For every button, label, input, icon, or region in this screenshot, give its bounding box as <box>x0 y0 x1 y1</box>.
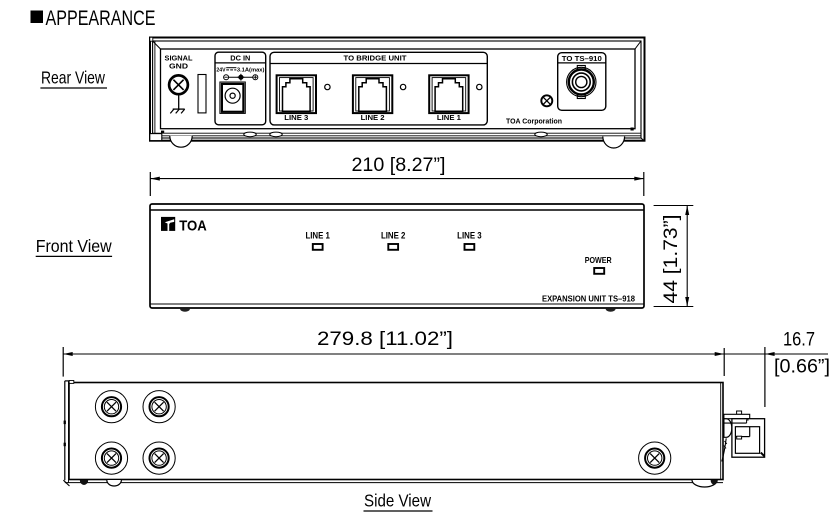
svg-text:TO TS–910: TO TS–910 <box>562 54 602 63</box>
svg-text:APPEARANCE: APPEARANCE <box>46 6 156 30</box>
svg-text:210 [8.27”]: 210 [8.27”] <box>352 154 446 176</box>
svg-text:279.8 [11.02”]: 279.8 [11.02”] <box>317 328 453 350</box>
svg-text:Front View: Front View <box>36 236 112 256</box>
svg-text:Rear View: Rear View <box>41 68 105 88</box>
svg-text:LINE 1: LINE 1 <box>305 231 330 242</box>
svg-text:Side View: Side View <box>364 490 431 510</box>
svg-text:POWER: POWER <box>585 255 612 265</box>
svg-text:3.1A(max): 3.1A(max) <box>237 67 265 73</box>
svg-text:LINE 3: LINE 3 <box>284 113 308 122</box>
svg-text:TOA: TOA <box>179 217 207 234</box>
svg-text:DC IN: DC IN <box>230 53 250 62</box>
svg-text:GND: GND <box>169 61 188 70</box>
svg-text:EXPANSION UNIT TS–918: EXPANSION UNIT TS–918 <box>542 295 635 304</box>
svg-text:LINE 3: LINE 3 <box>457 231 482 242</box>
svg-text:44 [1.73”]: 44 [1.73”] <box>660 215 682 304</box>
svg-text:24V: 24V <box>216 67 225 73</box>
svg-text:LINE 1: LINE 1 <box>437 113 461 122</box>
svg-text:[0.66”]: [0.66”] <box>774 355 830 377</box>
svg-text:LINE 2: LINE 2 <box>381 231 406 242</box>
svg-text:16.7: 16.7 <box>783 329 815 351</box>
svg-text:LINE 2: LINE 2 <box>361 113 385 122</box>
svg-text:TOA Corporation: TOA Corporation <box>506 116 562 125</box>
svg-text:TO BRIDGE UNIT: TO BRIDGE UNIT <box>344 54 407 63</box>
